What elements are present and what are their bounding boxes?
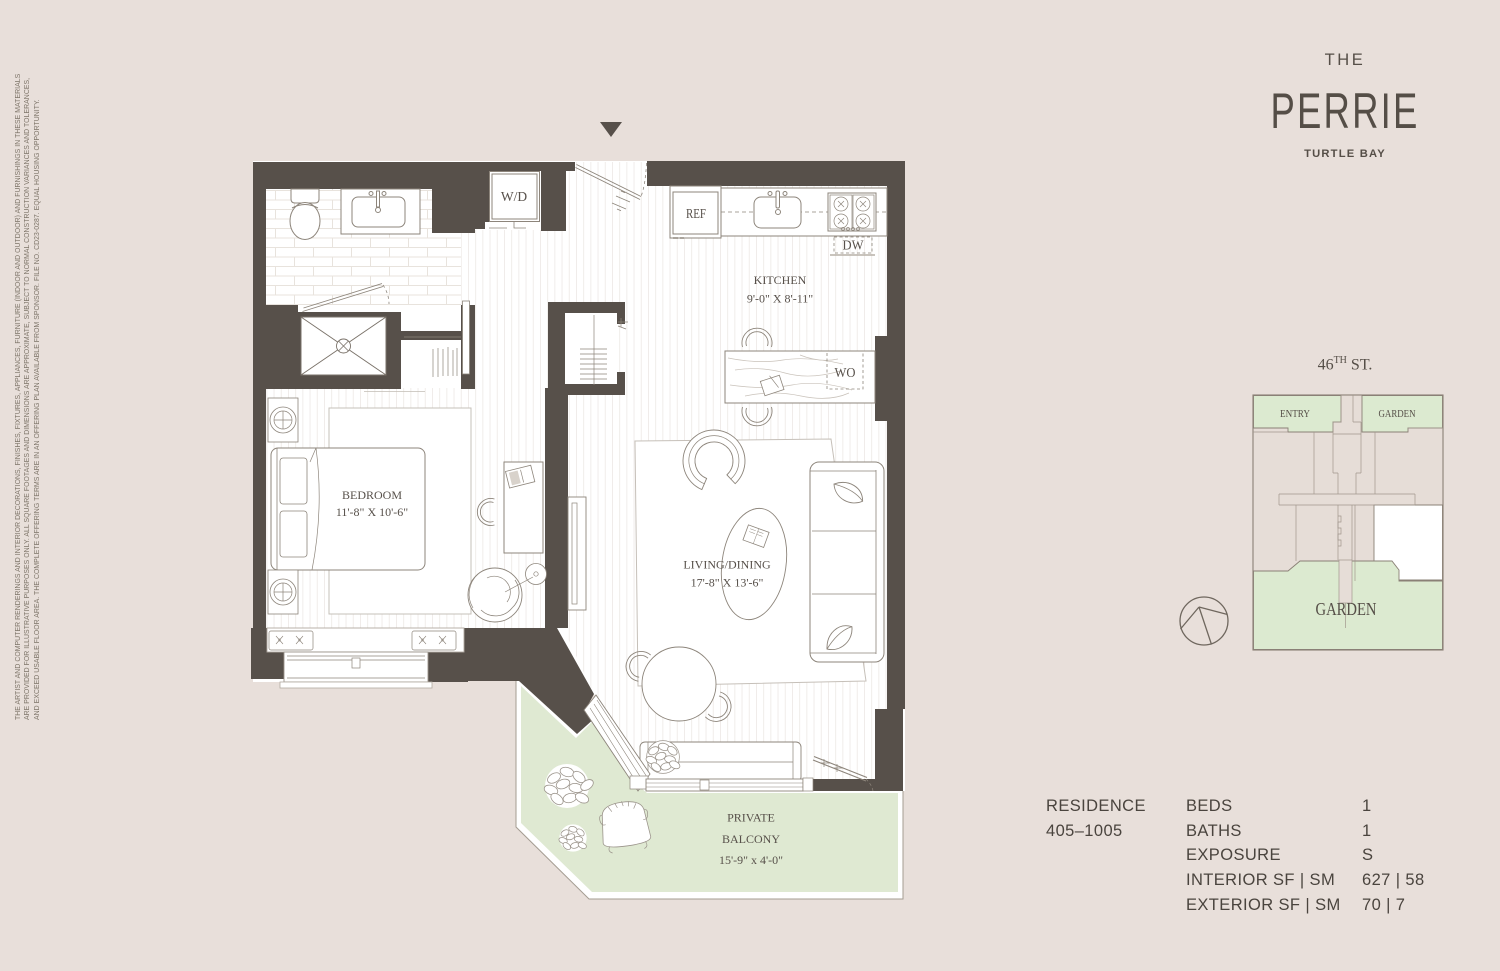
svg-text:DW: DW bbox=[843, 238, 864, 253]
svg-text:GARDEN: GARDEN bbox=[1379, 409, 1416, 420]
svg-text:PRIVATE: PRIVATE bbox=[727, 811, 775, 825]
svg-text:11'-8" X 10'-6": 11'-8" X 10'-6" bbox=[336, 505, 408, 519]
svg-text:15'-9" x 4'-0": 15'-9" x 4'-0" bbox=[719, 853, 783, 867]
svg-text:GARDEN: GARDEN bbox=[1316, 599, 1377, 619]
svg-text:WO: WO bbox=[835, 365, 856, 380]
svg-text:REF: REF bbox=[686, 206, 706, 221]
svg-text:17'-8" X 13'-6": 17'-8" X 13'-6" bbox=[691, 576, 764, 590]
svg-text:KITCHEN: KITCHEN bbox=[754, 273, 807, 287]
svg-text:ENTRY: ENTRY bbox=[1280, 409, 1310, 420]
svg-text:BALCONY: BALCONY bbox=[722, 832, 780, 846]
svg-text:W/D: W/D bbox=[501, 189, 527, 204]
svg-text:BEDROOM: BEDROOM bbox=[342, 488, 402, 502]
svg-text:9'-0" X 8'-11": 9'-0" X 8'-11" bbox=[747, 292, 813, 306]
svg-text:LIVING/DINING: LIVING/DINING bbox=[683, 558, 771, 572]
